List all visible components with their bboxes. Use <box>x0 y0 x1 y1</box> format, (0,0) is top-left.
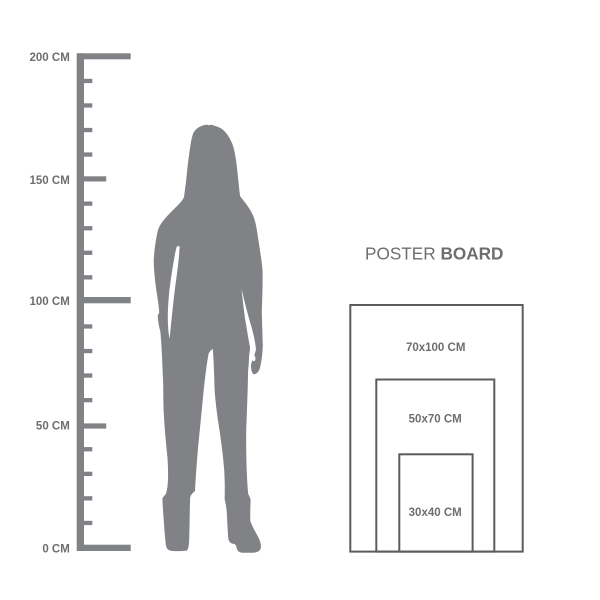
svg-text:POSTER BOARD: POSTER BOARD <box>365 244 503 264</box>
svg-text:0 CM: 0 CM <box>42 543 69 555</box>
svg-text:50 CM: 50 CM <box>36 421 70 433</box>
svg-text:50x70 CM: 50x70 CM <box>409 414 462 426</box>
svg-text:30x40 CM: 30x40 CM <box>409 507 462 519</box>
svg-text:150 CM: 150 CM <box>30 175 70 187</box>
svg-text:100 CM: 100 CM <box>30 296 70 308</box>
svg-text:200 CM: 200 CM <box>30 52 70 64</box>
svg-text:70x100 CM: 70x100 CM <box>406 342 465 354</box>
